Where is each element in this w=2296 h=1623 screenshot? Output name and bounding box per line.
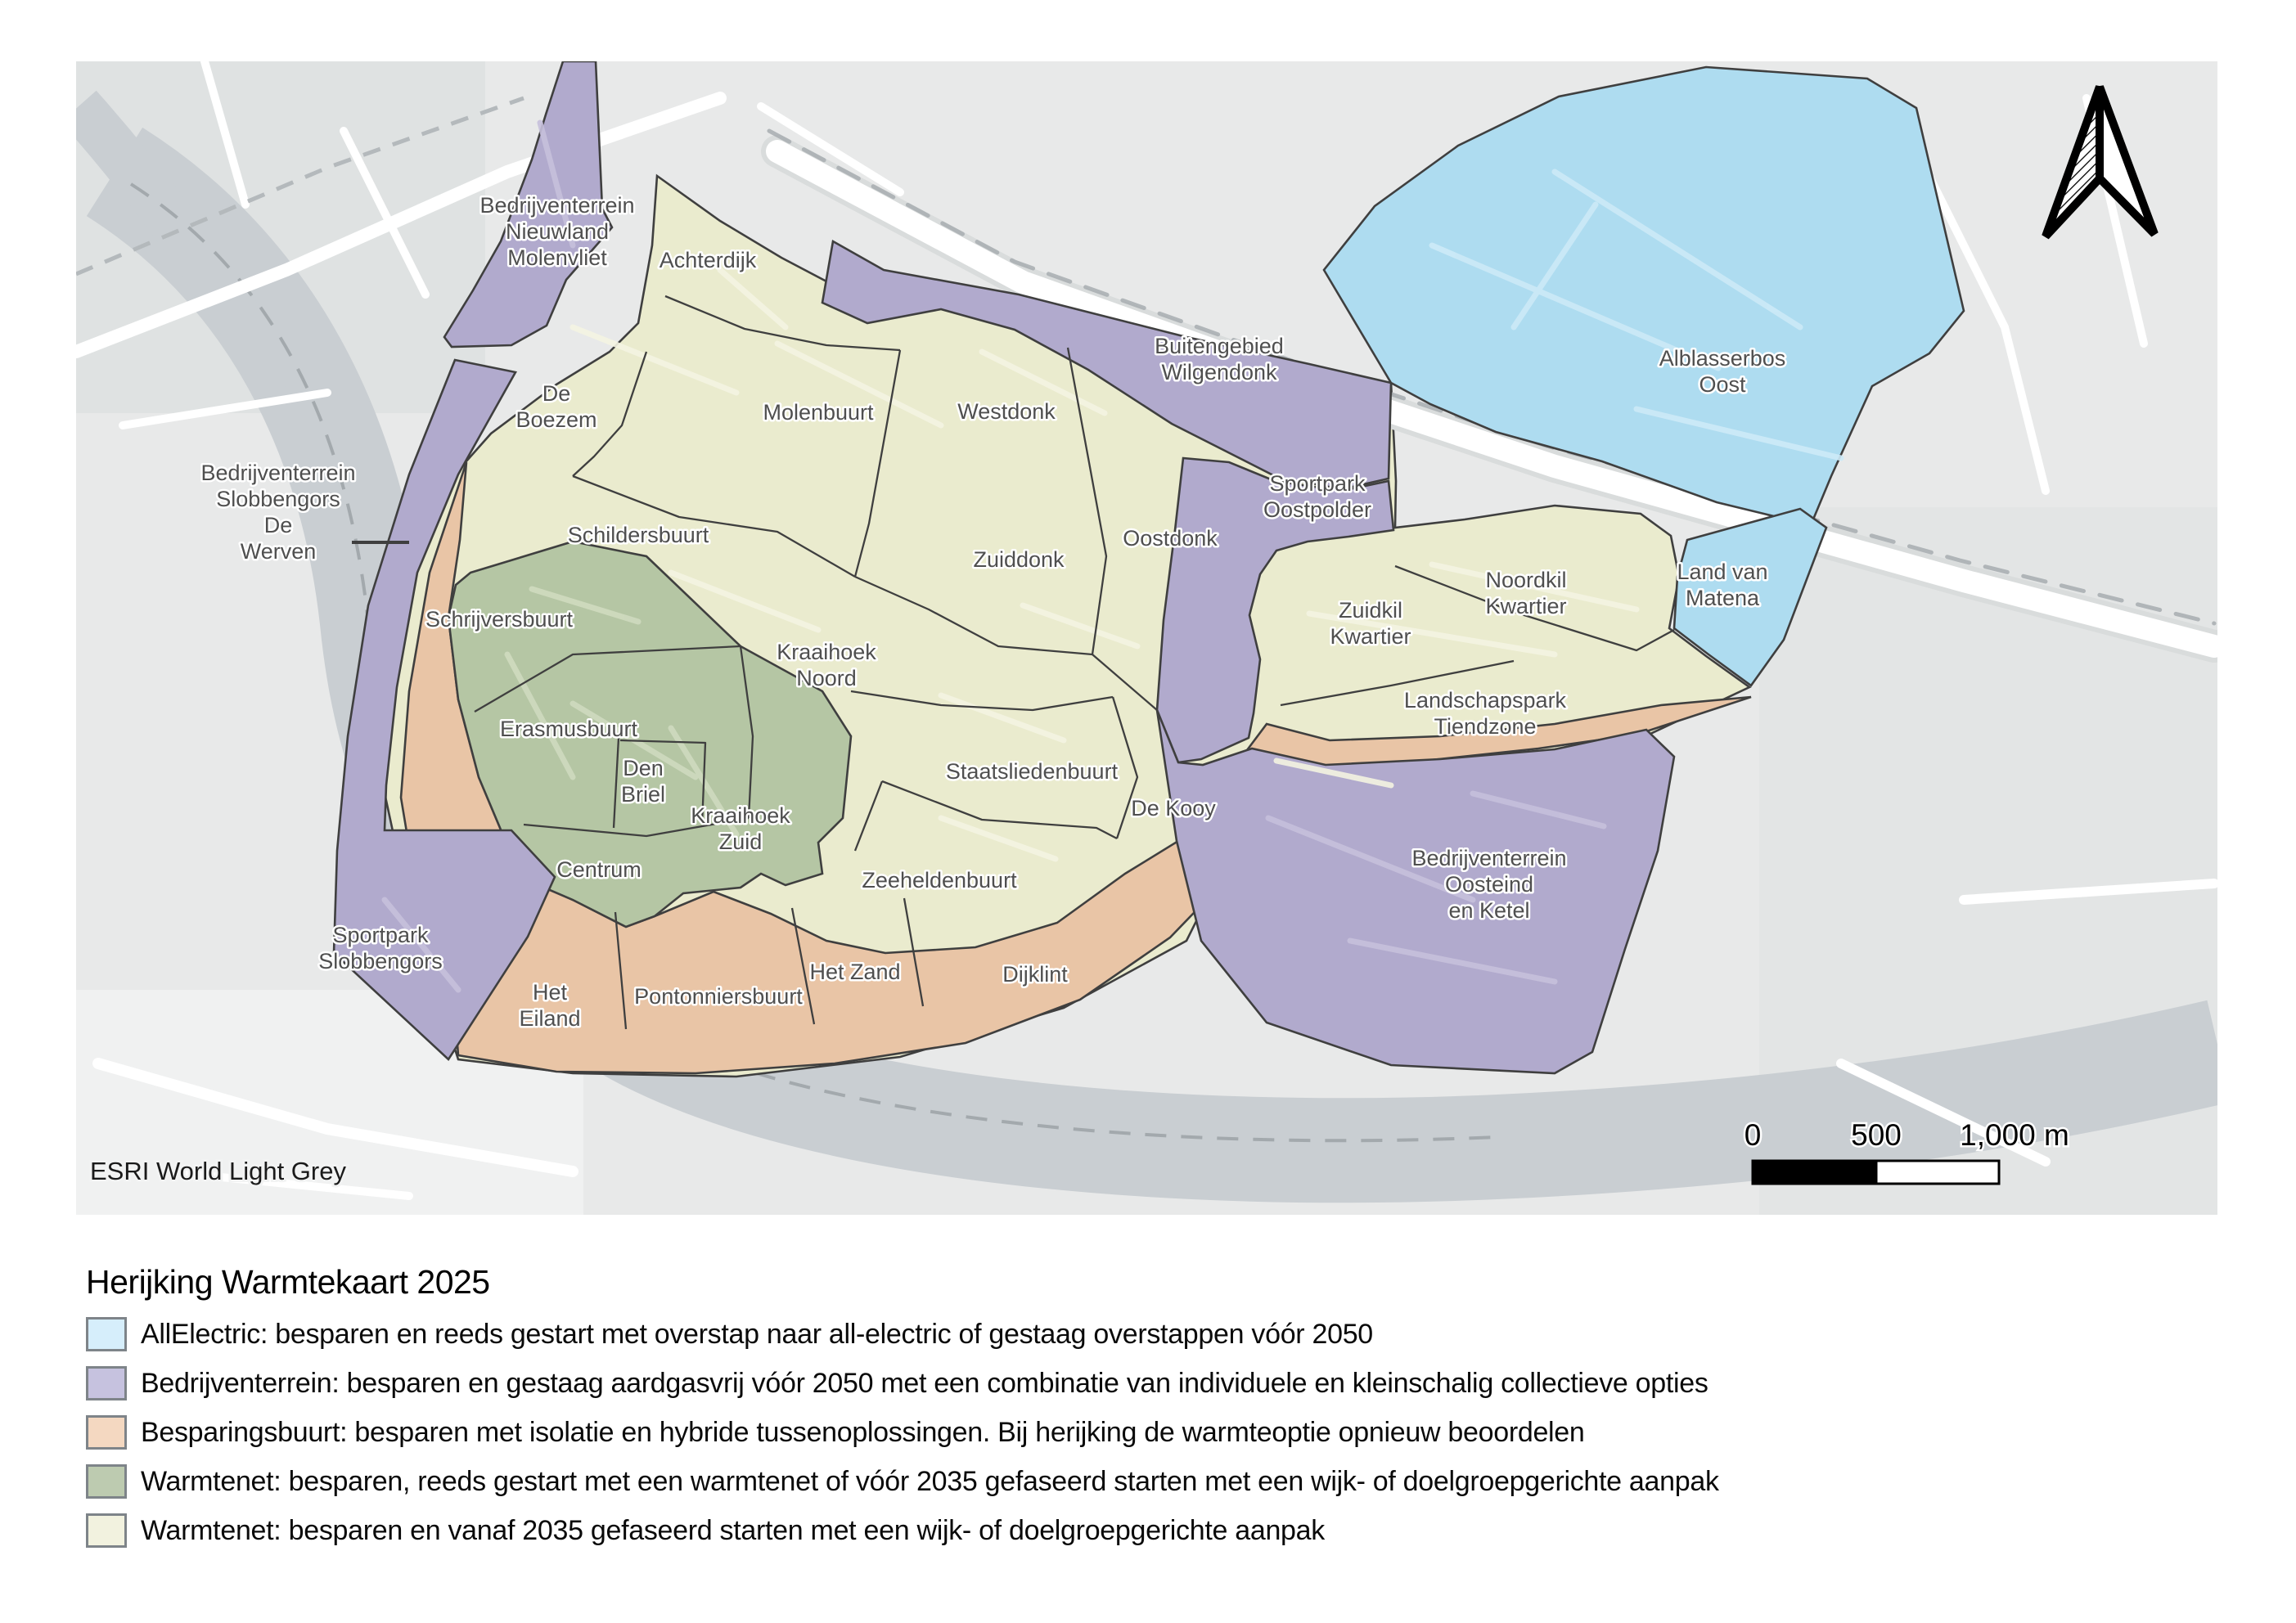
map-canvas: BedrijventerreinNieuwlandMolenvlietAchte… (76, 61, 2217, 1215)
legend-title: Herijking Warmtekaart 2025 (86, 1263, 2254, 1302)
legend-swatch-warmtenet-2035 (86, 1513, 127, 1548)
legend-rows: AllElectric: besparen en reeds gestart m… (86, 1315, 2254, 1549)
map-label-zuiddonk: Zuiddonk (973, 547, 1065, 572)
map-label-oostdonk: Oostdonk (1123, 526, 1218, 551)
map-label-erasmusbuurt: Erasmusbuurt (500, 717, 638, 741)
legend-label-warmtenet-gestart: Warmtenet: besparen, reeds gestart met e… (141, 1466, 1719, 1498)
map-attribution: ESRI World Light Grey (90, 1157, 346, 1185)
map-label-zeeheldenbuurt: Zeeheldenbuurt (862, 868, 1017, 892)
map-label-schrijversbuurt: Schrijversbuurt (425, 607, 574, 632)
map-label-pontonniersbuurt: Pontonniersbuurt (634, 984, 803, 1009)
legend-item-bedrijventerrein: Bedrijventerrein: besparen en gestaag aa… (86, 1364, 2254, 1402)
legend-item-warmtenet-2035: Warmtenet: besparen en vanaf 2035 gefase… (86, 1512, 2254, 1549)
legend-item-besparingsbuurt: Besparingsbuurt: besparen met isolatie e… (86, 1414, 2254, 1451)
scale-bar-white-segment (1876, 1161, 1999, 1184)
map-label-de-kooy: De Kooy (1131, 796, 1216, 820)
scale-tick-1000m: 1,000 m (1960, 1118, 2069, 1152)
scale-tick-500: 500 (1851, 1118, 1902, 1152)
legend-label-besparingsbuurt: Besparingsbuurt: besparen met isolatie e… (141, 1417, 1585, 1449)
page: { "map": { "attribution": "ESRI World Li… (0, 0, 2296, 1623)
legend-swatch-bedrijventerrein (86, 1366, 127, 1400)
legend-swatch-all-electric (86, 1317, 127, 1351)
legend-item-warmtenet-gestart: Warmtenet: besparen, reeds gestart met e… (86, 1463, 2254, 1500)
map-label-het-zand: Het Zand (809, 960, 900, 984)
legend-label-bedrijventerrein: Bedrijventerrein: besparen en gestaag aa… (141, 1368, 1708, 1400)
map-label-dijklint: Dijklint (1002, 962, 1068, 987)
legend-label-all-electric: AllElectric: besparen en reeds gestart m… (141, 1319, 1373, 1351)
legend-swatch-besparingsbuurt (86, 1415, 127, 1450)
legend: Herijking Warmtekaart 2025 AllElectric: … (86, 1263, 2254, 1561)
legend-item-all-electric: AllElectric: besparen en reeds gestart m… (86, 1315, 2254, 1353)
map-label-centrum: Centrum (556, 857, 642, 882)
map-label-staatsliedenbuurt: Staatsliedenbuurt (946, 759, 1119, 784)
legend-label-warmtenet-2035: Warmtenet: besparen en vanaf 2035 gefase… (141, 1515, 1325, 1547)
map-label-achterdijk: Achterdijk (660, 248, 757, 272)
map-label-schildersbuurt: Schildersbuurt (568, 523, 709, 547)
scale-bar-black-segment (1753, 1161, 1876, 1184)
map-label-molenbuurt: Molenbuurt (763, 400, 874, 425)
legend-swatch-warmtenet-gestart (86, 1464, 127, 1499)
scale-tick-0: 0 (1745, 1118, 1762, 1152)
map-label-westdonk: Westdonk (957, 399, 1056, 424)
